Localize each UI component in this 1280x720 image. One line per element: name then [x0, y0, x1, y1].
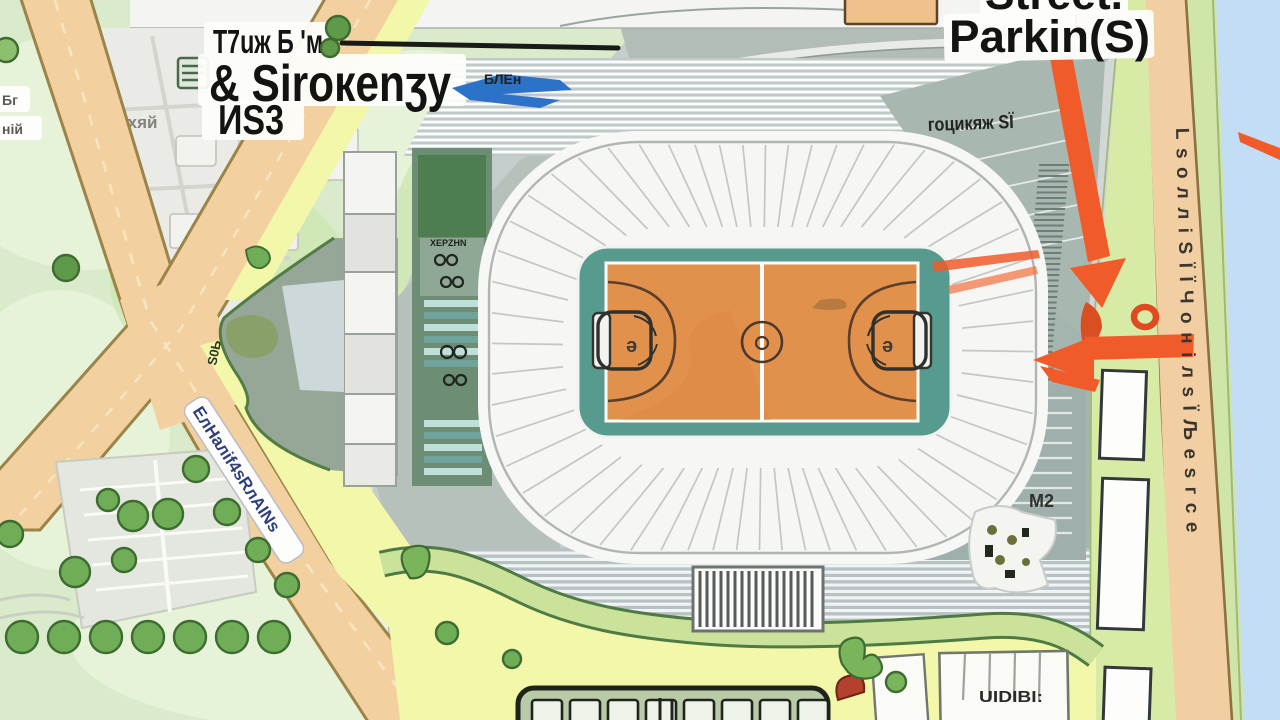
svg-text:Бг: Бг	[2, 92, 18, 108]
svg-text:XEPZHN: XEPZHN	[430, 238, 467, 248]
svg-text:ИS3: ИS3	[218, 96, 284, 143]
svg-text:ǝ: ǝ	[626, 335, 637, 357]
svg-text:UIDIBI:: UIDIBI:	[979, 689, 1043, 706]
svg-text:Parkin(S): Parkin(S)	[949, 11, 1150, 62]
svg-text:M2: M2	[1029, 491, 1054, 511]
svg-text:гоцикяж ЅЇ: гоцикяж ЅЇ	[927, 112, 1014, 136]
svg-text:ній: ній	[2, 121, 23, 137]
svg-text:БЛЕн: БЛЕн	[484, 71, 521, 87]
svg-text:ǝ: ǝ	[882, 335, 893, 357]
